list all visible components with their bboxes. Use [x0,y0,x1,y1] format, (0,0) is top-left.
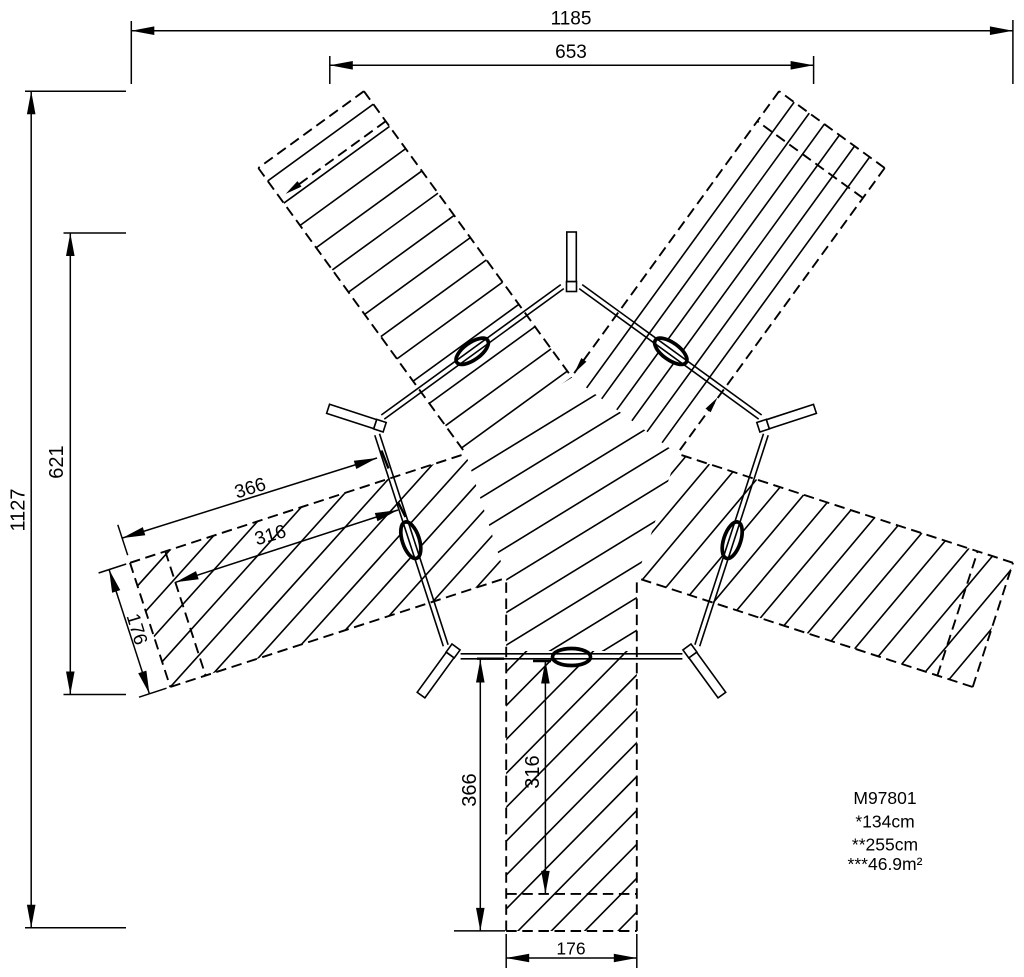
svg-text:**255cm: **255cm [852,835,918,855]
svg-text:1185: 1185 [551,9,592,30]
svg-text:621: 621 [46,445,68,478]
svg-text:M97801: M97801 [853,788,916,808]
svg-text:176: 176 [556,939,585,959]
svg-text:316: 316 [522,755,544,788]
svg-text:653: 653 [555,42,587,63]
svg-text:1127: 1127 [8,488,30,531]
svg-text:***46.9m²: ***46.9m² [848,854,923,874]
svg-text:*134cm: *134cm [855,812,914,832]
svg-text:366: 366 [459,773,481,806]
